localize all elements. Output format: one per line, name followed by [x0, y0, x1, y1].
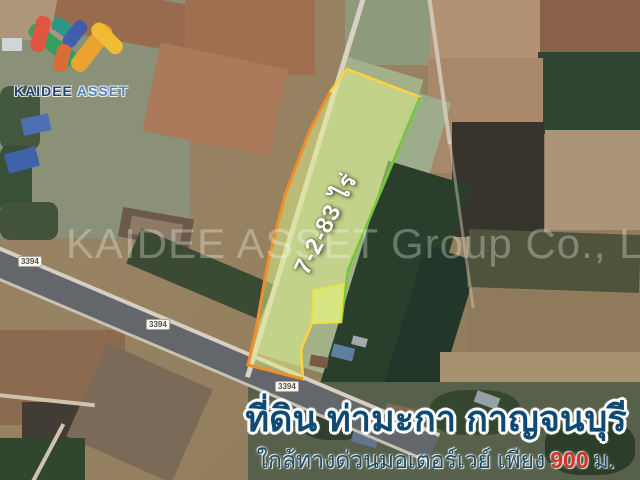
subtitle-prefix: ใกล้ทางด่วนมอเตอร์เวย์ เพียง — [257, 447, 545, 473]
road-number-badge: 3394 — [275, 381, 299, 392]
kaidee-asset-logo: KAIDEEASSET — [14, 8, 124, 99]
listing-title: ที่ดิน ท่ามะกา กาญจนบุรี — [240, 396, 632, 441]
road-number-badge: 3394 — [18, 256, 42, 267]
watermark-text: KAIDEE ASSET Group Co., Ltd. — [66, 220, 640, 268]
logo-brand-primary: KAIDEE — [14, 83, 73, 99]
logo-brand-text: KAIDEEASSET — [14, 83, 124, 99]
listing-subtitle: ใกล้ทางด่วนมอเตอร์เวย์ เพียง900ม. — [240, 443, 632, 479]
listing-image: 3394 3394 3394 7-2-83 ไร่ KAIDEE ASSET G… — [0, 0, 640, 480]
kaidee-asset-logo-icon — [14, 8, 124, 78]
listing-banner: ที่ดิน ท่ามะกา กาญจนบุรี ใกล้ทางด่วนมอเต… — [240, 396, 632, 479]
subtitle-distance-highlight: 900 — [550, 447, 588, 473]
plot-inner-parcel — [312, 284, 344, 323]
road-number-badge: 3394 — [146, 319, 170, 330]
subtitle-suffix: ม. — [594, 447, 616, 473]
logo-brand-secondary: ASSET — [77, 83, 129, 99]
